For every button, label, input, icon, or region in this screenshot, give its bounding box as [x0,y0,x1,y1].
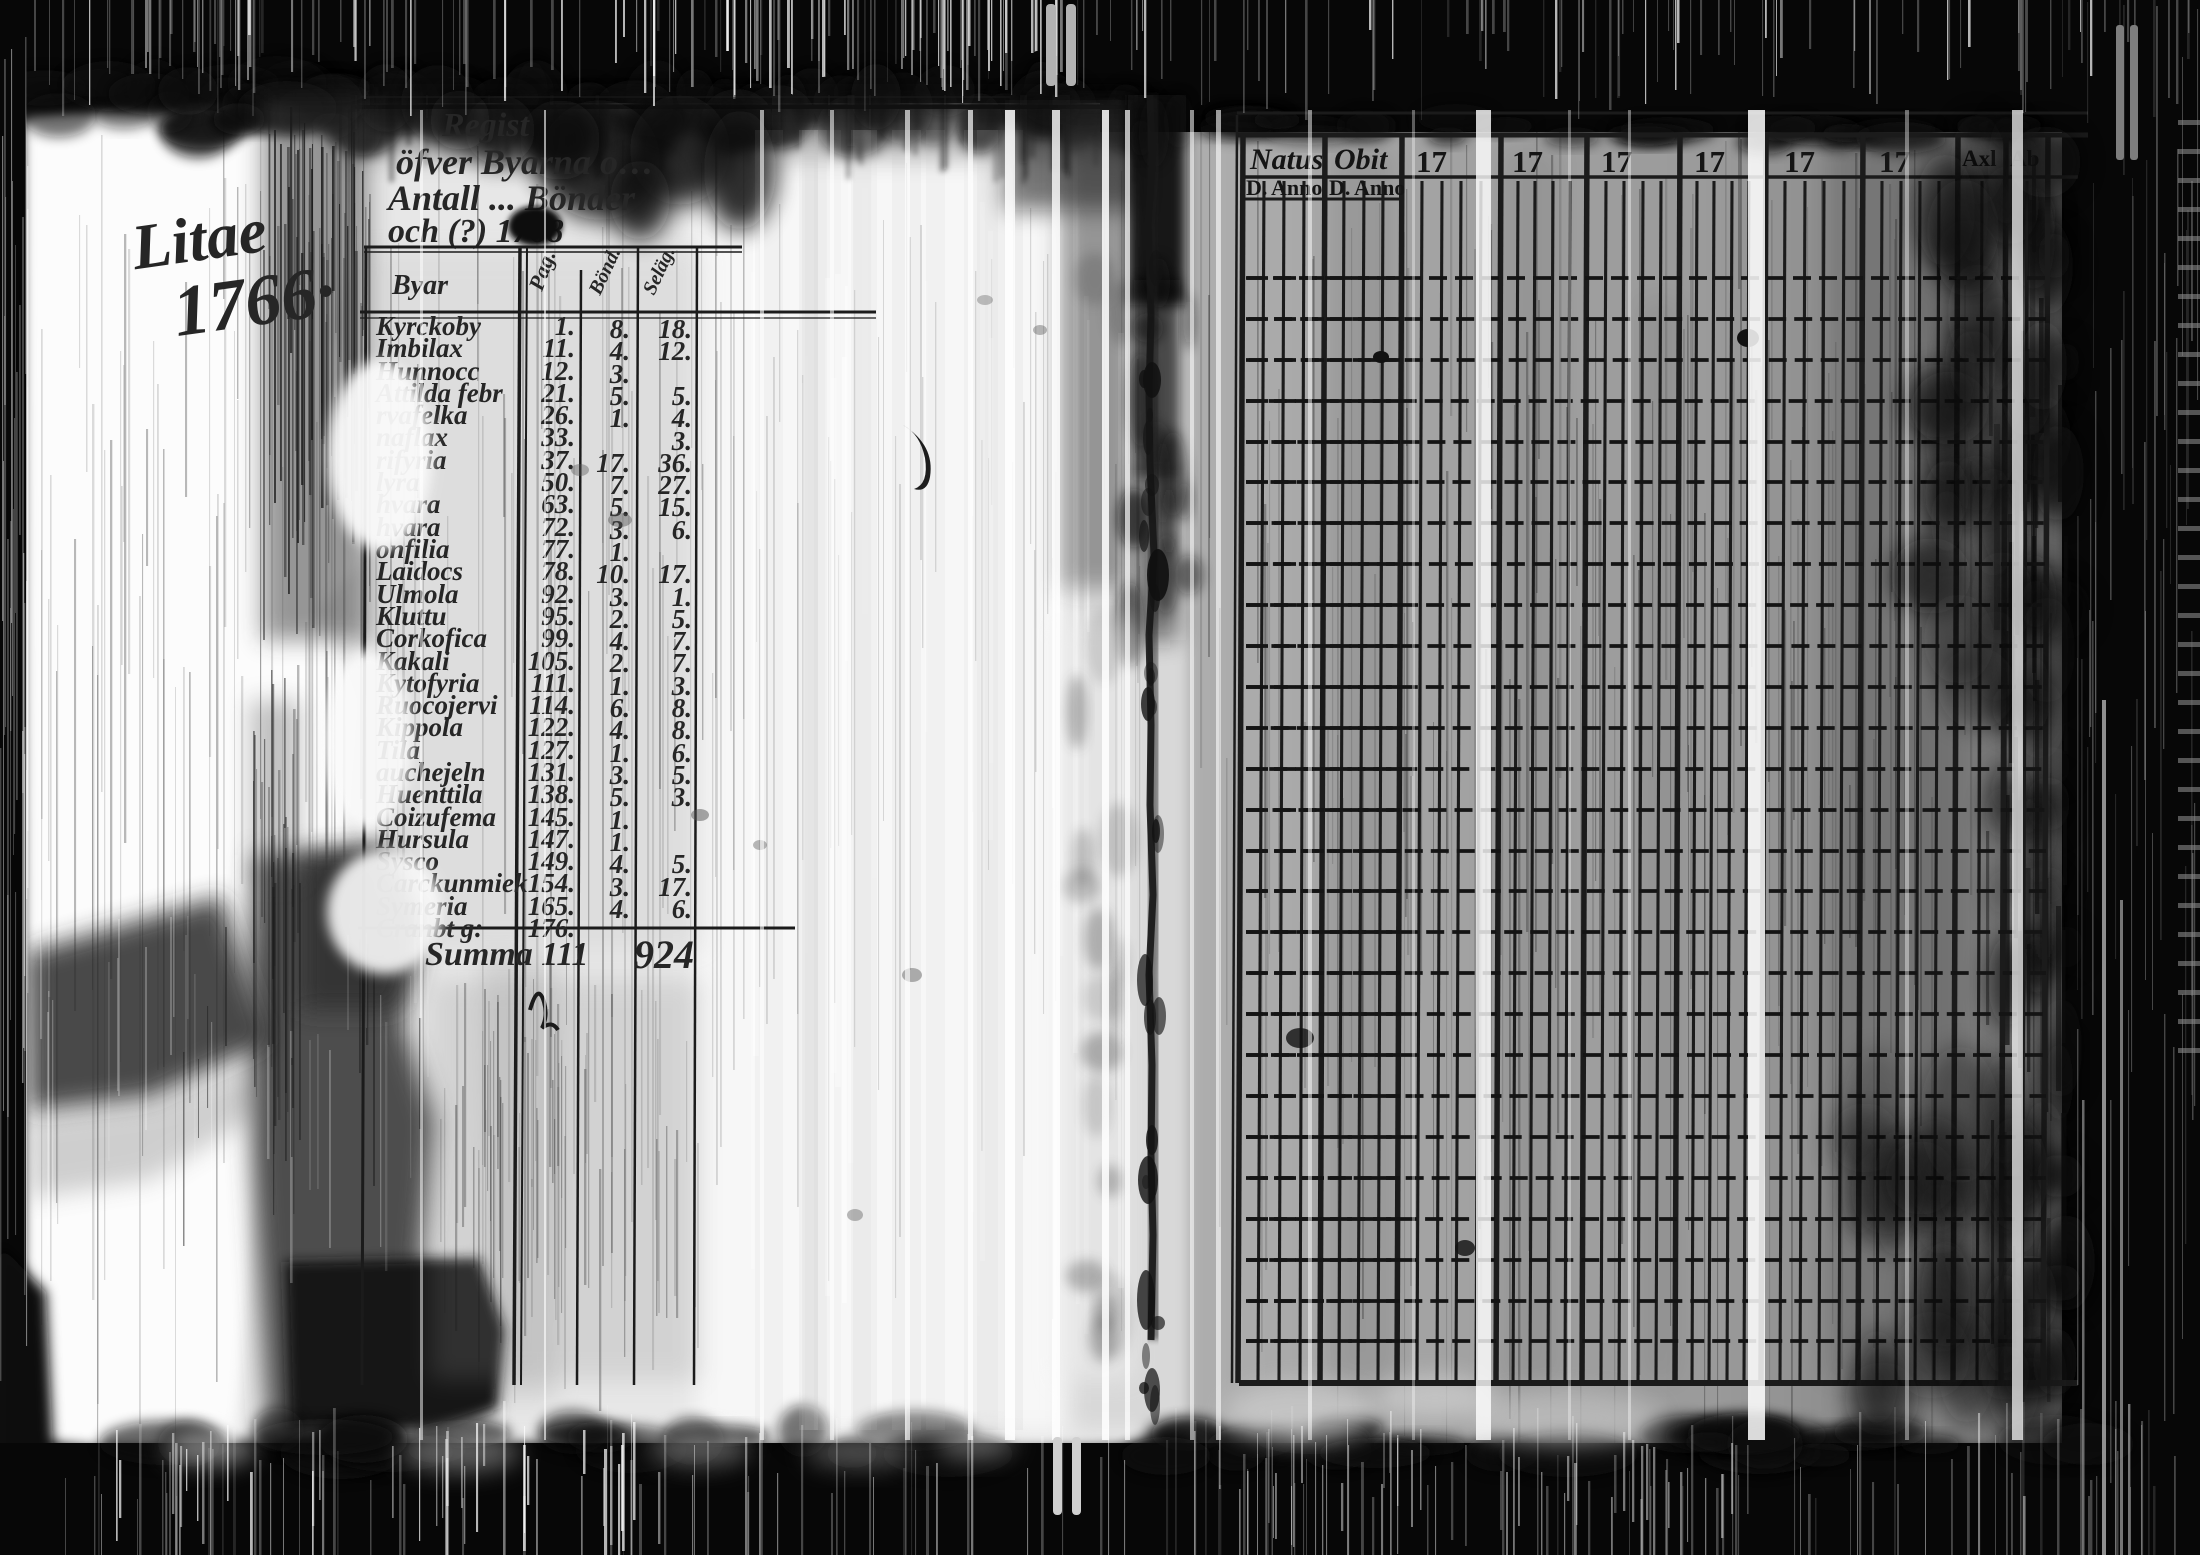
svg-text:Summa 111: Summa 111 [425,936,588,973]
svg-text:Regist: Regist [441,107,530,144]
svg-text:D.: D. [1246,175,1267,200]
svg-text:924: 924 [634,932,694,977]
svg-text:6.: 6. [672,894,692,924]
svg-text:Obit: Obit [1334,143,1389,176]
svg-text:Antall ... Bönder: Antall ... Bönder [386,178,636,218]
svg-text:1.: 1. [610,403,630,433]
svg-text:6.: 6. [672,515,692,545]
svg-text:Anno: Anno [1271,175,1322,200]
svg-text:17: 17 [1601,144,1632,179]
svg-text:3.: 3. [671,782,692,812]
svg-text:17: 17 [1512,144,1543,179]
svg-text:öfver Byarna o…: öfver Byarna o… [396,142,654,182]
svg-text:Natus: Natus [1249,143,1323,176]
svg-text:17: 17 [1416,144,1447,179]
svg-text:4.: 4. [609,894,630,924]
svg-text:Anno: Anno [1354,175,1405,200]
svg-text:D.: D. [1329,175,1350,200]
svg-text:17: 17 [1694,144,1725,179]
svg-text:17: 17 [1784,144,1815,179]
svg-text:12.: 12. [658,336,692,366]
